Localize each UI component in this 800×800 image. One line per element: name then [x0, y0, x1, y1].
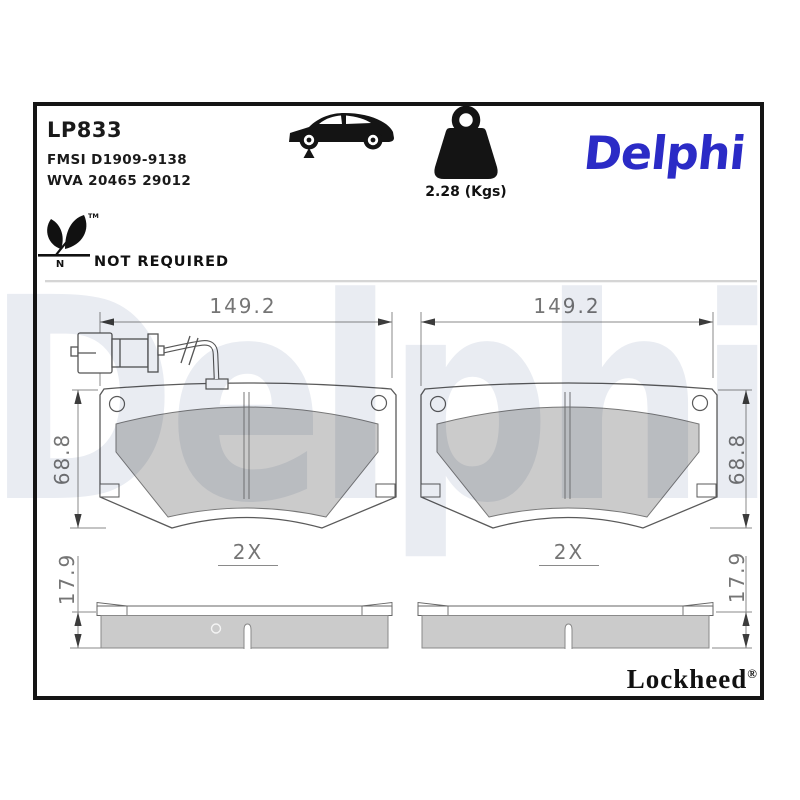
right-pad-height-dim: 68.8 — [725, 424, 747, 494]
bottom-slot — [565, 624, 572, 649]
lockheed-logo: Lockheed® — [627, 664, 758, 695]
right-pad-thickness-dim: 17.9 — [725, 542, 747, 612]
mounting-hole — [693, 396, 708, 411]
sensor-tab — [206, 379, 228, 389]
left-pad-thickness-dim: 17.9 — [55, 544, 77, 614]
registered-mark: ® — [747, 666, 758, 681]
mounting-hole — [372, 396, 387, 411]
wear-sensor — [71, 333, 228, 389]
right-pad-width-dim: 149.2 — [512, 294, 622, 318]
mounting-hole — [431, 397, 446, 412]
left-pad-quantity: 2X — [218, 540, 278, 566]
wire-break-symbol — [181, 336, 198, 365]
datasheet-page: LP833 FMSI D1909-9138 WVA 20465 29012 De… — [0, 0, 800, 800]
sensor-connector — [71, 333, 164, 373]
left-pad-front-view — [100, 383, 396, 528]
mounting-hole — [110, 397, 125, 412]
right-pad-quantity: 2X — [539, 540, 599, 566]
left-pad-bottom-view — [97, 603, 392, 650]
right-pad-front-view — [421, 383, 717, 528]
lockheed-wordmark: Lockheed — [627, 664, 748, 694]
right-pad-bottom-view — [418, 603, 713, 650]
sensor-wire — [162, 343, 217, 379]
left-pad-height-dim: 68.8 — [50, 424, 72, 494]
left-pad-width-dim: 149.2 — [188, 294, 298, 318]
bottom-slot — [244, 624, 251, 649]
